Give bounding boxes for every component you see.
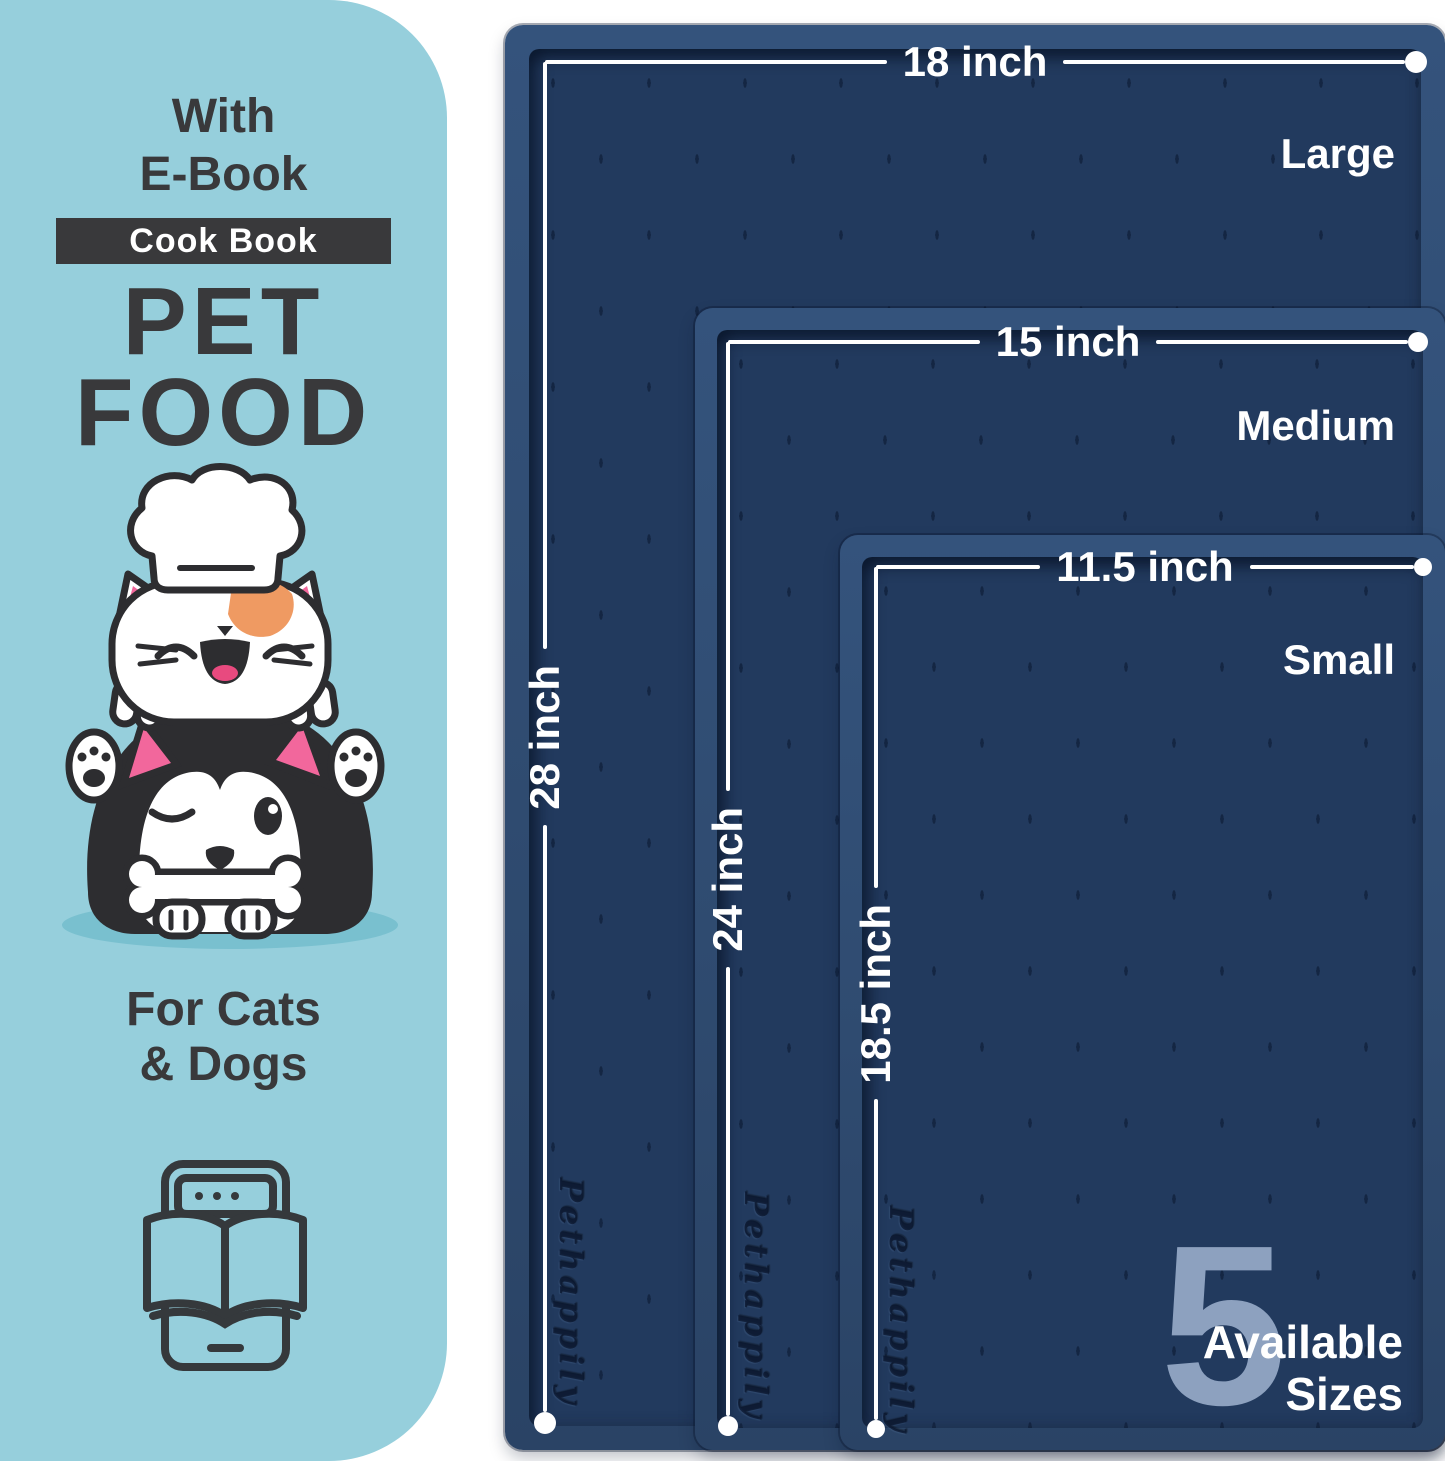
product-title-line2: FOOD [0, 367, 447, 458]
audience-caption: For Cats & Dogs [0, 982, 447, 1092]
pets-illustration-icon [30, 460, 420, 965]
mat-small-surface [862, 557, 1423, 1428]
width-measure-large: 18 inch [545, 39, 1427, 85]
product-title: PET FOOD [0, 276, 447, 458]
size-name-medium: Medium [1236, 402, 1395, 450]
height-measure-medium-label: 24 inch [707, 807, 749, 952]
cookbook-badge-label: Cook Book [129, 222, 317, 261]
measure-endpoint-dot [867, 1420, 885, 1438]
height-measure-large: 28 inch [522, 62, 568, 1434]
ebook-icon [133, 1158, 318, 1373]
measure-endpoint-dot [1408, 332, 1428, 352]
width-measure-medium-label: 15 inch [996, 321, 1141, 363]
product-infographic: With E-Book Cook Book PET FOOD [0, 0, 1445, 1461]
width-measure-small-label: 11.5 inch [1056, 546, 1233, 588]
width-measure-large-label: 18 inch [903, 41, 1048, 83]
measure-endpoint-dot [1405, 51, 1427, 73]
product-title-line1: PET [0, 276, 447, 367]
measure-endpoint-dot [1414, 558, 1432, 576]
height-measure-medium: 24 inch [705, 342, 751, 1436]
size-name-small: Small [1283, 636, 1395, 684]
width-measure-medium: 15 inch [728, 319, 1428, 365]
measure-endpoint-dot [534, 1412, 556, 1434]
ebook-callout-line2: E-Book [0, 146, 447, 204]
ebook-callout: With E-Book [0, 88, 447, 203]
height-measure-large-label: 28 inch [524, 665, 566, 810]
ebook-callout-line1: With [0, 88, 447, 146]
available-sizes-caption-line1: Available [1203, 1317, 1403, 1369]
height-measure-small-label: 18.5 inch [855, 904, 897, 1084]
measure-endpoint-dot [718, 1416, 738, 1436]
audience-caption-line2: & Dogs [0, 1037, 447, 1092]
available-sizes-caption: Available Sizes [1203, 1317, 1403, 1420]
height-measure-small: 18.5 inch [853, 567, 899, 1438]
size-name-large: Large [1281, 130, 1395, 178]
audience-caption-line1: For Cats [0, 982, 447, 1037]
available-sizes-caption-line2: Sizes [1203, 1369, 1403, 1421]
left-info-panel: With E-Book Cook Book PET FOOD [0, 0, 447, 1461]
width-measure-small: 11.5 inch [876, 544, 1432, 590]
cookbook-badge: Cook Book [56, 218, 391, 264]
